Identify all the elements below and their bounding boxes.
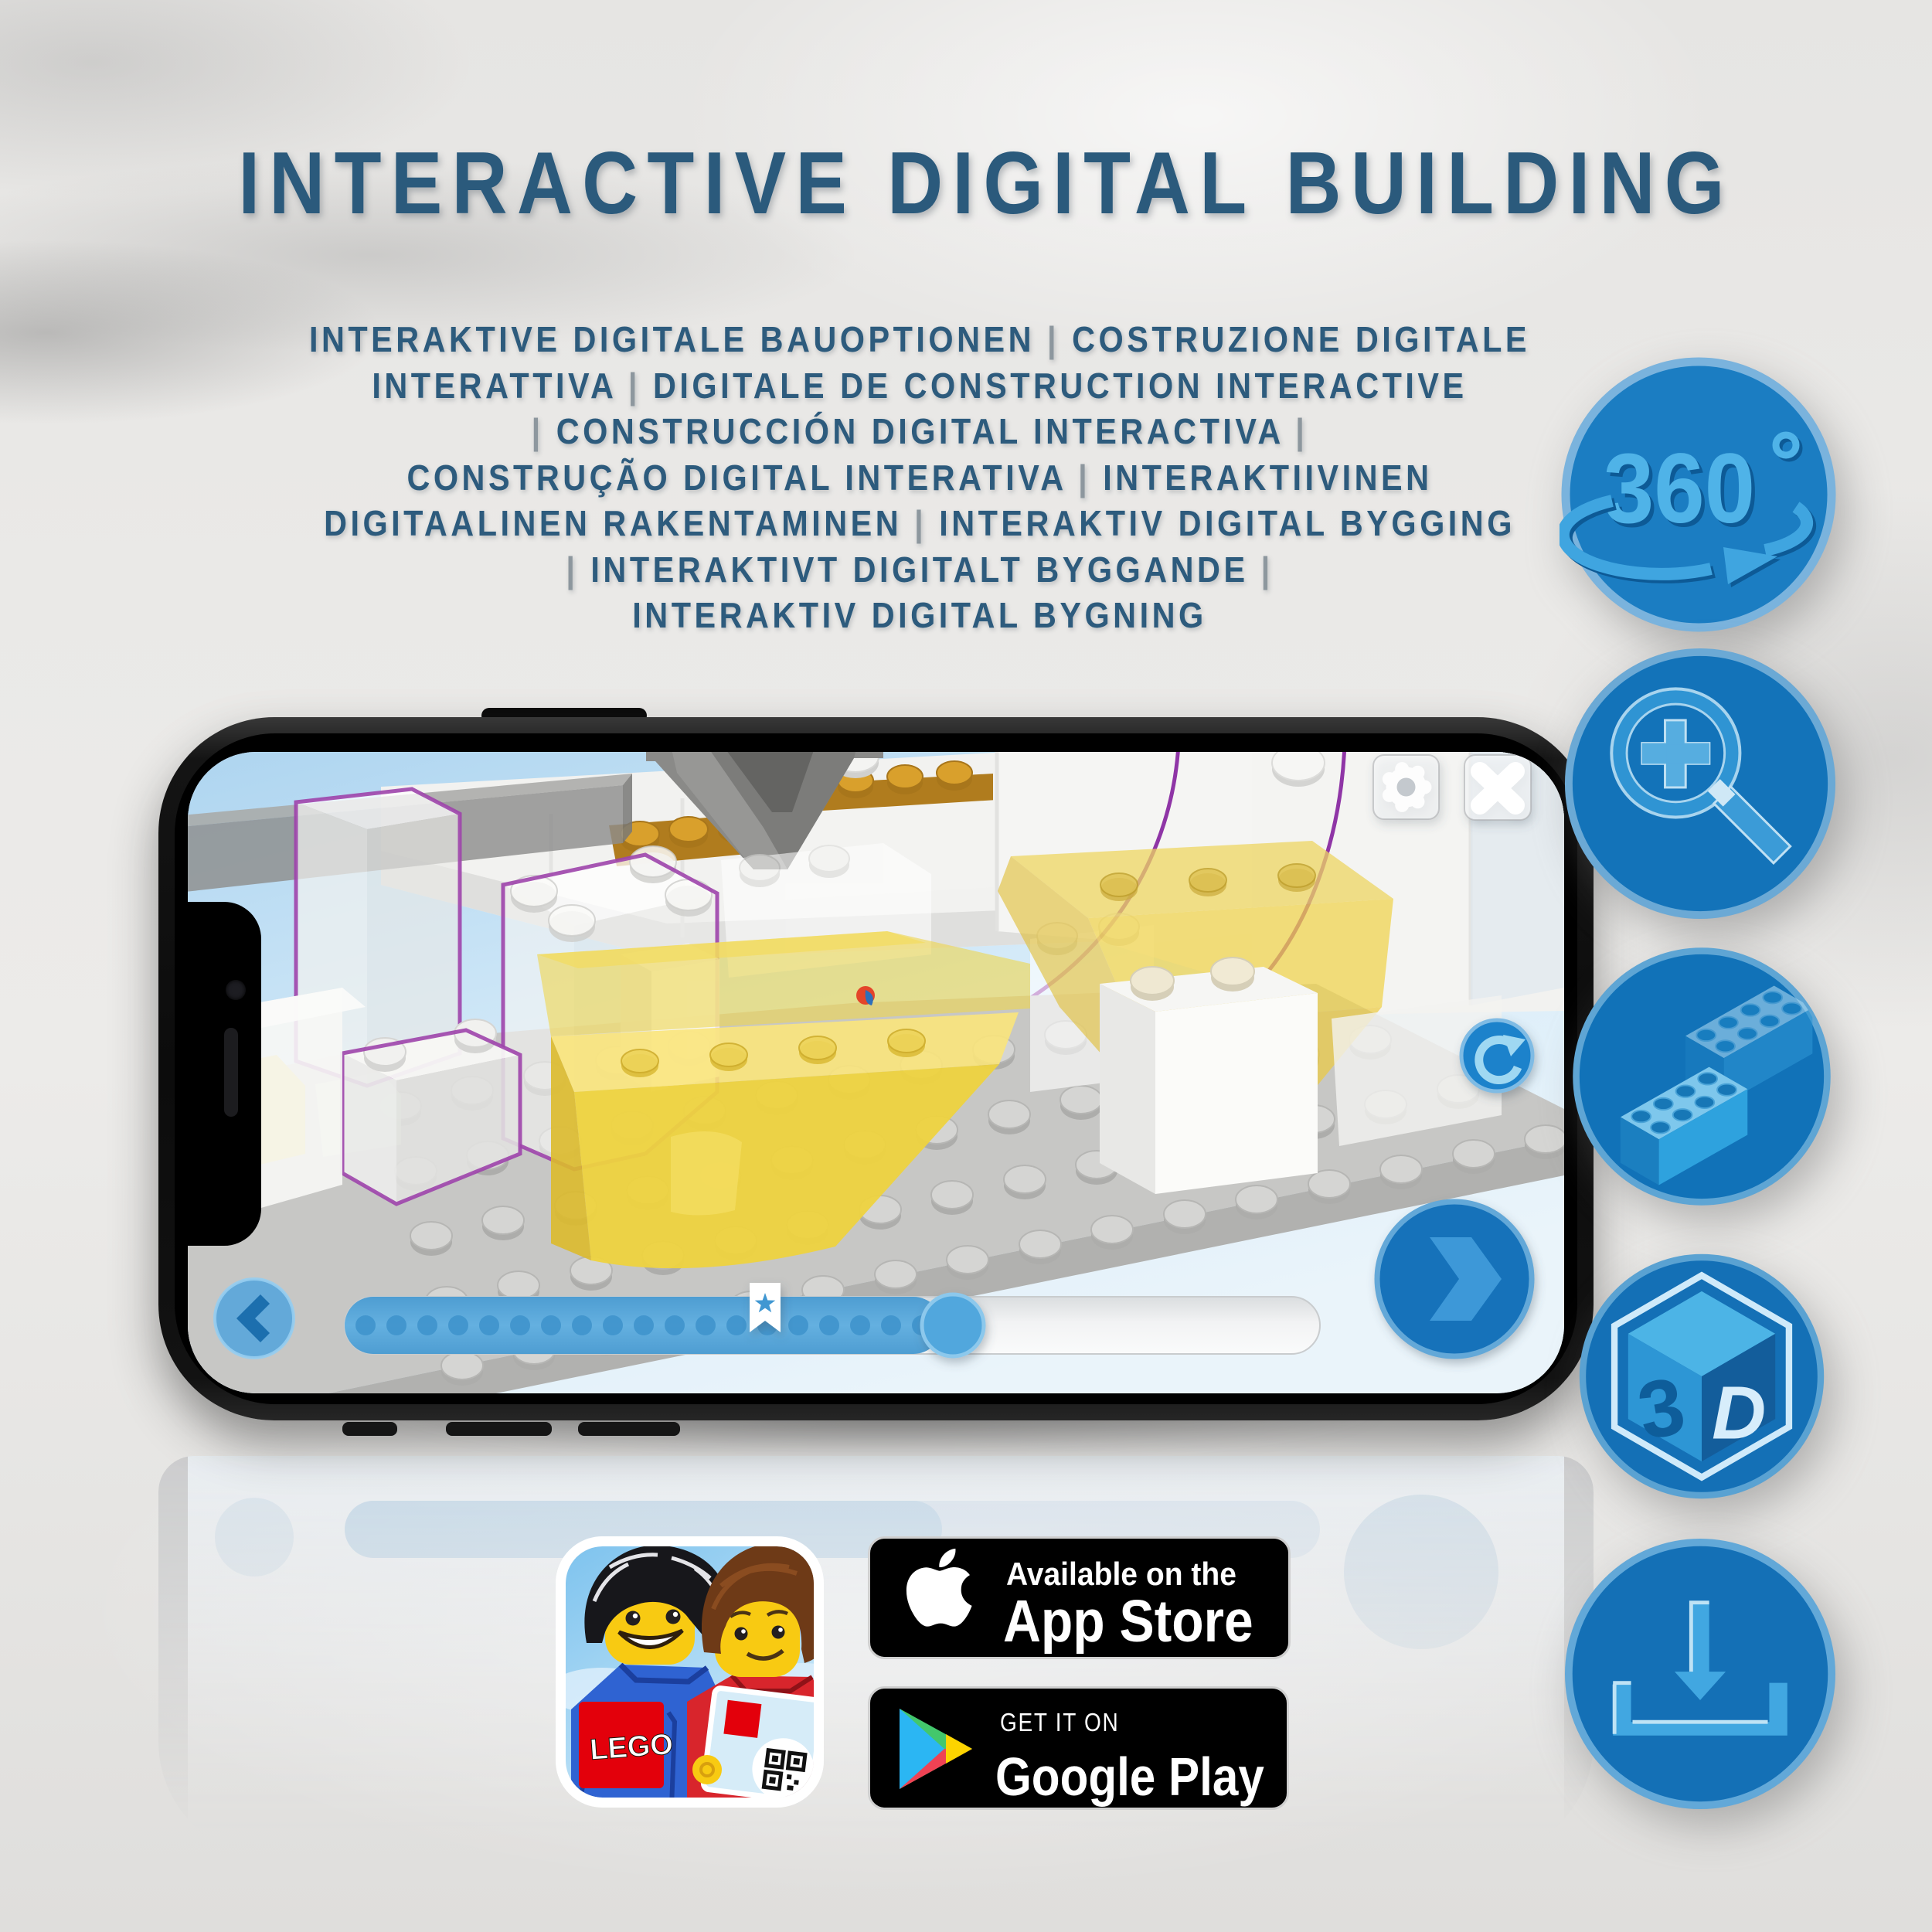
svg-text:LEGO: LEGO: [589, 1728, 674, 1766]
svg-text:GET IT ON: GET IT ON: [1000, 1709, 1119, 1737]
svg-text:Available on the: Available on the: [1006, 1556, 1236, 1593]
svg-text:360: 360: [1604, 434, 1755, 545]
svg-text:App Store: App Store: [1003, 1588, 1253, 1655]
svg-text:D: D: [1712, 1370, 1766, 1454]
svg-text:Google Play: Google Play: [995, 1747, 1264, 1807]
